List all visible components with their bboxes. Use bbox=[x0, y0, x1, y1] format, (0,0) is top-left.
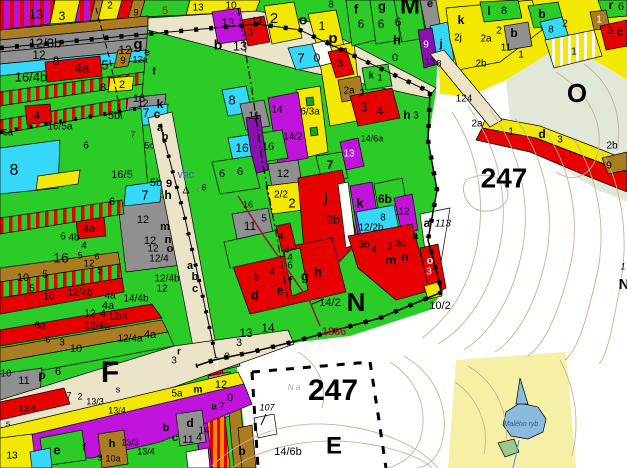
map-label: M bbox=[400, 0, 420, 19]
map-label: 3 bbox=[253, 273, 259, 284]
map-label: r bbox=[177, 347, 181, 358]
map-label: p bbox=[328, 30, 337, 47]
map-label: 10 bbox=[43, 292, 55, 303]
map-label: 3d bbox=[395, 239, 406, 250]
map-label: 0 bbox=[224, 352, 230, 363]
map-region bbox=[254, 414, 277, 438]
map-label: p bbox=[38, 368, 45, 382]
map-label: 13 bbox=[6, 451, 18, 462]
map-label: 4 bbox=[371, 245, 377, 256]
map-label: 8 bbox=[53, 54, 60, 68]
map-label: 8 bbox=[501, 5, 507, 17]
map-label: b bbox=[214, 37, 223, 53]
map-label: h bbox=[109, 438, 116, 450]
map-label: 6 bbox=[237, 166, 243, 178]
map-label: 9 bbox=[423, 40, 429, 51]
map-label: e bbox=[53, 442, 60, 457]
map-label: 11 bbox=[501, 43, 512, 54]
map-label: 2 bbox=[288, 195, 295, 210]
map-label: 12 bbox=[137, 214, 149, 226]
map-label: b bbox=[238, 444, 245, 458]
map-label: 12a bbox=[132, 54, 147, 64]
map-label: h bbox=[314, 264, 322, 279]
map-region bbox=[186, 448, 210, 468]
map-label: 4 bbox=[100, 309, 106, 320]
map-label: 13 bbox=[343, 149, 355, 160]
map-label: k bbox=[368, 71, 374, 82]
map-label: Malého ryb bbox=[504, 421, 539, 428]
map-label: 4 bbox=[269, 267, 275, 278]
map-label: 12 bbox=[83, 259, 95, 270]
map-label: 3 bbox=[59, 338, 65, 349]
map-label: 2 bbox=[562, 19, 568, 30]
map-label: 10 bbox=[0, 369, 12, 380]
map-label: a bbox=[424, 216, 431, 230]
map-label: 10 bbox=[17, 272, 29, 284]
map-label: 5 bbox=[77, 250, 82, 260]
map-label: 16 bbox=[235, 141, 249, 155]
map-label: 5b bbox=[150, 177, 162, 189]
forestry-map-viewport[interactable]: 133295131012/3bge121285912af4a16/4b82161… bbox=[0, 0, 627, 468]
map-label: j bbox=[438, 38, 442, 50]
map-label: h bbox=[164, 188, 171, 202]
map-label: g bbox=[301, 268, 309, 283]
map-label: 3 bbox=[213, 361, 219, 372]
map-label: 7 bbox=[141, 187, 148, 202]
map-label: 247 bbox=[481, 162, 528, 193]
map-label: 4a bbox=[83, 223, 96, 235]
map-label: 6 bbox=[201, 182, 206, 192]
map-label: 2 bbox=[77, 391, 82, 401]
map-label: 10 bbox=[70, 343, 82, 355]
map-label: 3 bbox=[607, 25, 613, 37]
map-label: 3 bbox=[171, 356, 177, 367]
map-label: 16 bbox=[53, 250, 69, 266]
map-label: 2b bbox=[606, 141, 618, 152]
map-label: 6 bbox=[395, 15, 402, 29]
map-label: d bbox=[538, 127, 545, 141]
map-label: 8 bbox=[328, 0, 334, 11]
map-label: o bbox=[299, 12, 308, 28]
map-label: 16 bbox=[262, 141, 274, 153]
map-label: l bbox=[487, 4, 490, 18]
map-label: 12/4 bbox=[149, 254, 169, 265]
map-label: 6b bbox=[378, 192, 392, 206]
map-label: 13 bbox=[29, 6, 43, 21]
map-label: 6/3a bbox=[300, 107, 320, 118]
map-label: 2 bbox=[270, 10, 278, 27]
map-label: 6 bbox=[378, 17, 385, 31]
map-label: 12 bbox=[84, 309, 96, 320]
map-label: d bbox=[186, 416, 193, 430]
map-label: m bbox=[386, 253, 397, 267]
map-label: f bbox=[288, 273, 293, 288]
map-label: 8 bbox=[548, 25, 554, 36]
map-label: 4 bbox=[34, 110, 40, 122]
map-label: 11 bbox=[182, 434, 193, 446]
map-label: E bbox=[326, 432, 342, 459]
map-label: 2a bbox=[343, 86, 355, 97]
map-label: 3 bbox=[337, 58, 343, 70]
map-label: o bbox=[427, 255, 434, 267]
map-label: 11 bbox=[248, 110, 259, 122]
map-label: 4 bbox=[377, 104, 384, 118]
map-label: 9 bbox=[133, 7, 138, 17]
map-label: m bbox=[194, 385, 203, 396]
map-label: N bbox=[619, 276, 627, 293]
map-label: 3 bbox=[247, 27, 253, 39]
map-label: 1 bbox=[508, 127, 514, 138]
map-label: 6 bbox=[618, 1, 624, 13]
map-label: c bbox=[192, 283, 198, 295]
map-label: 5 bbox=[101, 57, 108, 72]
map-label: b bbox=[510, 26, 517, 40]
map-label: 3b bbox=[326, 213, 340, 227]
map-label: 5a bbox=[3, 127, 13, 137]
map-label: 14 bbox=[198, 426, 210, 437]
map-label: 0 bbox=[314, 51, 321, 65]
map-label: h bbox=[403, 108, 410, 122]
map-label: 1 bbox=[571, 47, 577, 58]
map-label: N bbox=[347, 287, 366, 317]
map-label: 7 bbox=[297, 50, 304, 65]
map-label: 6 bbox=[94, 251, 99, 261]
map-label: 2/2 bbox=[274, 190, 288, 201]
map-label: b bbox=[162, 131, 169, 143]
map-label: r bbox=[609, 0, 614, 12]
map-label: 13/3 bbox=[121, 437, 139, 447]
map-label: 14/6a bbox=[361, 133, 384, 143]
map-label: 107 bbox=[259, 402, 275, 412]
map-label: 1 bbox=[620, 261, 625, 271]
map-label: 16/5 bbox=[111, 169, 132, 181]
map-label: h bbox=[393, 32, 401, 47]
map-label: s bbox=[6, 418, 11, 428]
map-label: 2j bbox=[454, 33, 462, 44]
map-label: d bbox=[251, 287, 259, 302]
map-label: 14/4b bbox=[123, 294, 148, 305]
map-label: 6 bbox=[60, 232, 66, 243]
map-label: 7 bbox=[143, 106, 150, 120]
map-label: 12 bbox=[398, 207, 410, 218]
map-label: 8 bbox=[10, 162, 19, 179]
map-label: c bbox=[154, 107, 161, 121]
map-label: 6a bbox=[34, 321, 46, 332]
map-label: 0 bbox=[227, 392, 233, 404]
map-label: n bbox=[401, 250, 408, 264]
map-label: k bbox=[356, 195, 364, 210]
map-label: 1 bbox=[596, 15, 602, 26]
map-label: 7 bbox=[219, 402, 225, 413]
map-label: k bbox=[458, 13, 465, 27]
map-label: e bbox=[427, 0, 433, 10]
map-label: 6 bbox=[284, 244, 289, 254]
map-label: j bbox=[323, 189, 328, 205]
map-label: 12/4a bbox=[117, 334, 142, 345]
map-label: 14 bbox=[271, 105, 283, 116]
map-label: VRC bbox=[178, 171, 195, 180]
map-region bbox=[30, 448, 52, 468]
map-label: 11 bbox=[244, 219, 257, 233]
map-label: c bbox=[172, 432, 178, 444]
map-label: 12 bbox=[156, 284, 168, 295]
map-label: 1 bbox=[377, 72, 382, 82]
map-label: 1886 bbox=[322, 326, 346, 338]
map-label: 247 bbox=[308, 374, 358, 407]
map-label: 5 bbox=[261, 214, 267, 225]
map-label: 2b bbox=[475, 59, 487, 70]
map-label: 8 bbox=[100, 82, 106, 94]
map-label: 9 bbox=[120, 56, 126, 67]
map-label: 4a bbox=[75, 60, 90, 75]
map-label: 124 bbox=[456, 94, 473, 105]
map-label: b bbox=[163, 422, 170, 434]
map-label: 14. bbox=[191, 187, 201, 194]
map-label: 12 bbox=[215, 379, 227, 391]
map-label: 3b bbox=[358, 240, 370, 251]
map-label: 5 bbox=[162, 5, 168, 17]
map-label: 12/4b bbox=[67, 288, 92, 299]
map-label: 13/4 bbox=[137, 446, 155, 456]
map-label: 13 bbox=[221, 16, 235, 30]
map-label: 7 bbox=[130, 129, 135, 139]
map-label: 14/2 bbox=[319, 297, 340, 309]
map-label: O bbox=[567, 78, 587, 108]
map-region bbox=[0, 434, 36, 468]
map-label: 6 bbox=[55, 366, 61, 378]
map-label: 12/4 bbox=[108, 312, 128, 323]
map-label: 6 bbox=[109, 196, 115, 208]
map-region bbox=[310, 127, 318, 136]
map-label: 3 bbox=[236, 337, 242, 349]
map-label: 13 bbox=[233, 38, 247, 53]
map-label: N a bbox=[288, 383, 301, 392]
map-label: 7 bbox=[66, 390, 71, 400]
map-label: 3 bbox=[557, 135, 563, 146]
map-label: 13 bbox=[192, 3, 204, 14]
map-label: 3 bbox=[59, 9, 66, 23]
map-label: 5b bbox=[108, 110, 120, 122]
map-label: e bbox=[276, 282, 283, 297]
map-label: 3 bbox=[360, 99, 367, 114]
map-label: 13/4 bbox=[108, 405, 126, 415]
map-label: 3 bbox=[387, 242, 393, 253]
map-label: 4a bbox=[144, 329, 157, 341]
map-label: 13/3 bbox=[86, 396, 104, 406]
map-label: 3 bbox=[426, 267, 432, 278]
map-label: 11 bbox=[18, 375, 29, 387]
map-label: 2a bbox=[480, 34, 492, 45]
map-label: 3 bbox=[413, 111, 419, 122]
map-label: 5 bbox=[42, 270, 48, 281]
map-label: 1 bbox=[319, 19, 326, 33]
map-label: 113 bbox=[435, 219, 451, 230]
map-label: b bbox=[538, 7, 545, 21]
map-label: 12 bbox=[277, 168, 289, 180]
map-label: 5 bbox=[29, 284, 35, 295]
map-label: 10 bbox=[225, 1, 237, 12]
map-label: 16 bbox=[243, 199, 253, 209]
map-label: 14/2 bbox=[283, 132, 303, 143]
map-label: b bbox=[192, 271, 199, 283]
map-label: 2 bbox=[119, 79, 125, 91]
map-label: a bbox=[412, 230, 419, 242]
map-label: c bbox=[617, 25, 624, 39]
forestry-map-canvas[interactable]: 133295131012/3bge121285912af4a16/4b82161… bbox=[0, 0, 627, 468]
map-label: g bbox=[378, 0, 386, 13]
map-label: 8 bbox=[228, 92, 235, 107]
map-label: s bbox=[116, 384, 121, 394]
map-label: 2 bbox=[359, 87, 364, 97]
map-label: 16/5a bbox=[47, 122, 72, 133]
map-label: 4 bbox=[278, 232, 284, 243]
map-label: 14 bbox=[261, 321, 275, 335]
map-label: 8 bbox=[436, 58, 441, 68]
map-label: g bbox=[133, 36, 142, 53]
map-label: a bbox=[211, 402, 217, 413]
map-label: 4b bbox=[68, 233, 80, 244]
map-label: 12/2b bbox=[358, 223, 383, 234]
map-label: 6 bbox=[45, 334, 50, 344]
map-label: 6 bbox=[358, 17, 365, 31]
map-label: f bbox=[354, 1, 359, 16]
map-label: 13/4 bbox=[18, 403, 36, 413]
map-label: 2 bbox=[496, 26, 502, 37]
map-label: 2a bbox=[471, 119, 483, 130]
map-label: 1 bbox=[518, 50, 524, 61]
map-label: 5c bbox=[144, 140, 154, 150]
map-region bbox=[306, 97, 314, 106]
map-label: 6 bbox=[83, 141, 89, 152]
map-label: 12/4a bbox=[84, 321, 109, 332]
map-label: 16/4b bbox=[15, 69, 48, 84]
map-label: 9 bbox=[97, 452, 102, 462]
map-label: 13 bbox=[425, 56, 435, 66]
map-label: 0 bbox=[392, 52, 398, 64]
map-label: 7 bbox=[327, 158, 334, 172]
map-label: m bbox=[160, 221, 170, 233]
map-label: 10/2 bbox=[429, 300, 450, 312]
map-label: 13 bbox=[252, 15, 262, 25]
map-label: 5 bbox=[97, 266, 103, 277]
map-label: 14/6b bbox=[274, 446, 302, 458]
map-label: 2 bbox=[107, 1, 113, 12]
map-label: 12 bbox=[32, 48, 46, 62]
map-label: 5a bbox=[171, 389, 183, 400]
map-label: 6 bbox=[219, 168, 225, 180]
map-label: 10a bbox=[105, 453, 120, 463]
map-label: 9 bbox=[606, 161, 612, 172]
